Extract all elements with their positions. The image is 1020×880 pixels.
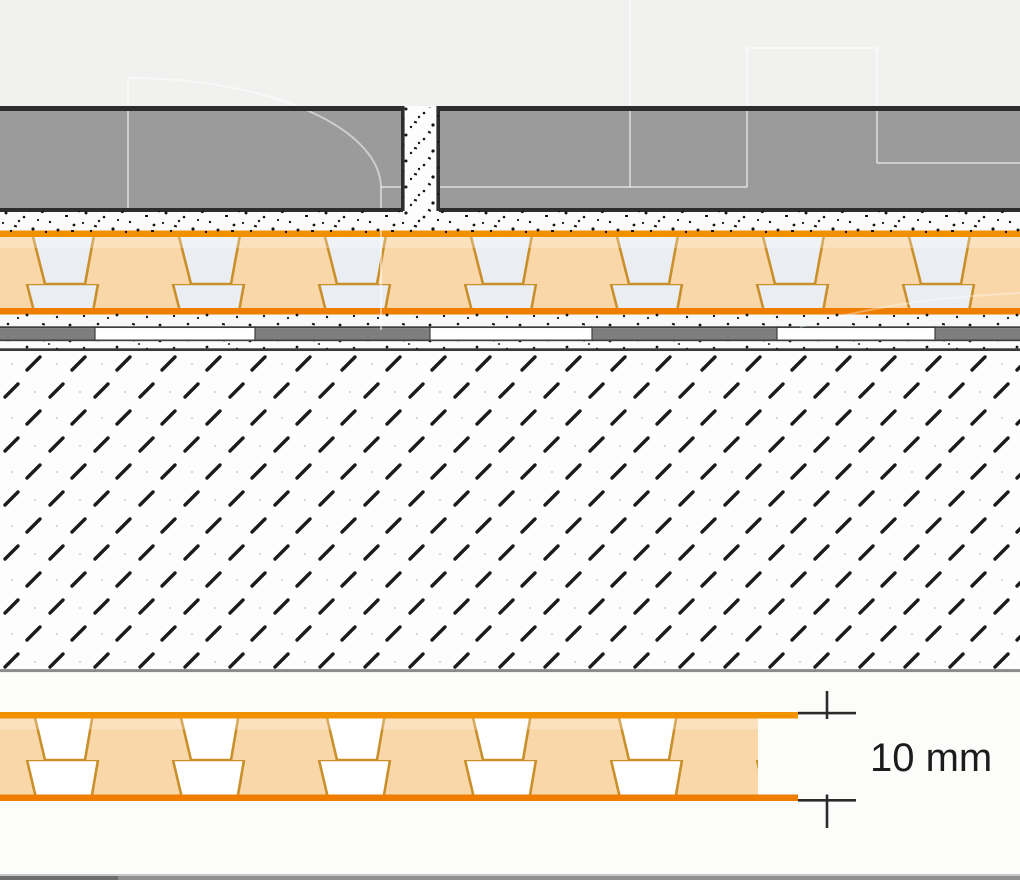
detail-membrane-sheen bbox=[0, 719, 758, 730]
bottom-bar-right-segment bbox=[118, 876, 1020, 880]
bottom-edge-bar bbox=[0, 874, 1020, 880]
tile-body bbox=[0, 111, 1020, 208]
upper-band-speckles bbox=[0, 313, 1020, 327]
strip-gray bbox=[935, 328, 1020, 339]
background-upper bbox=[0, 0, 1020, 106]
membrane-profile-detail bbox=[0, 712, 798, 801]
tile-top-border-right bbox=[439, 106, 1020, 111]
cross-section-drawing: 10 mm bbox=[0, 0, 1020, 880]
tile-covering-layer bbox=[0, 111, 1020, 208]
membrane-top-sheen bbox=[0, 237, 1020, 248]
bottom-bar-highlight bbox=[0, 874, 1020, 876]
screed-hatching bbox=[0, 351, 1020, 669]
bonding-strips-layer bbox=[0, 326, 1020, 341]
construction-detail-figure: 10 mm bbox=[0, 0, 1020, 880]
dimension-label: 10 mm bbox=[870, 736, 992, 780]
strip-gray bbox=[255, 328, 430, 339]
detail-membrane-cavities bbox=[0, 719, 758, 795]
dimension-tick-top-vertical bbox=[826, 691, 829, 719]
bottom-bar-left-segment bbox=[0, 876, 118, 880]
screed-substrate-layer bbox=[0, 351, 1020, 672]
uncoupling-membrane-layer bbox=[0, 231, 1020, 315]
detail-membrane-top-line bbox=[0, 712, 798, 719]
substrate-bottom-line bbox=[0, 669, 1020, 672]
strip-gray bbox=[592, 328, 777, 339]
strip-gray bbox=[0, 328, 95, 339]
strip-white bbox=[777, 328, 935, 339]
strip-white bbox=[95, 328, 255, 339]
mortar-speckles bbox=[0, 211, 1020, 235]
detail-membrane-bottom-line bbox=[0, 795, 798, 802]
lower-band-speckles bbox=[0, 341, 1020, 349]
dimension-tick-bottom-vertical bbox=[826, 795, 829, 829]
tile-top-border-left bbox=[0, 106, 403, 111]
strip-white bbox=[430, 328, 592, 339]
